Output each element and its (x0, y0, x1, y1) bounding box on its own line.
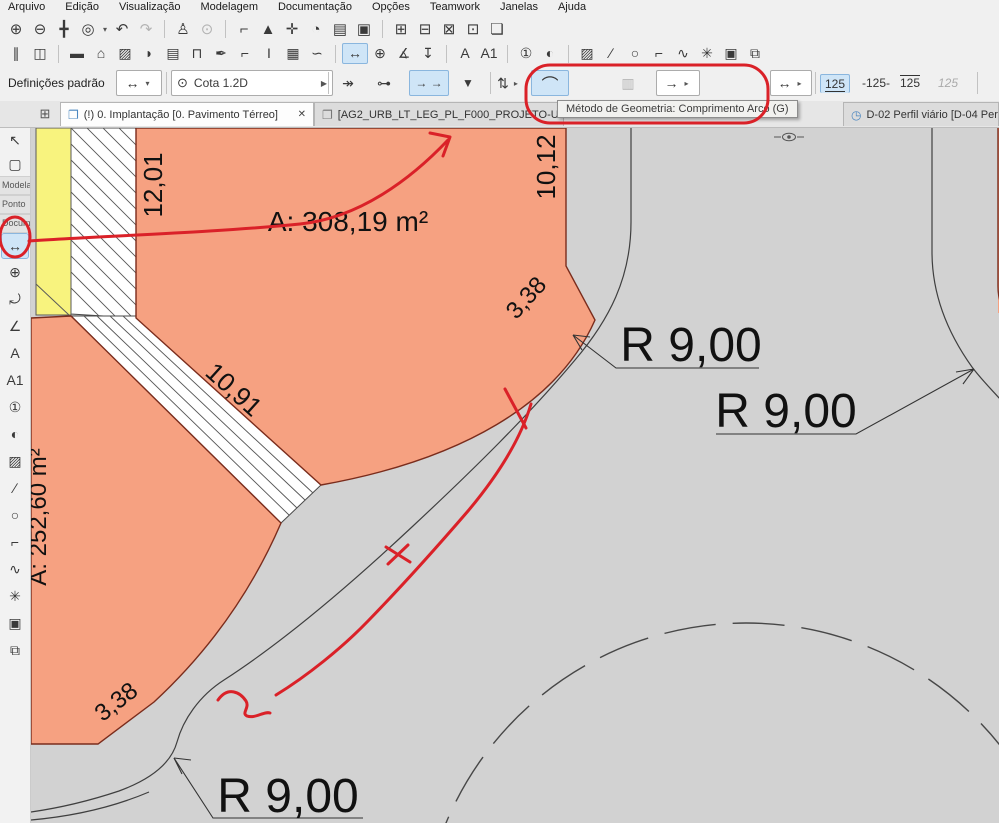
orbit-icon[interactable]: ⊙ (195, 19, 219, 40)
separator (977, 72, 978, 94)
toolbox: ↖▢ModelaPontoDocum↔⊕⤾∠AA1①◐▨∕○⌐∿✳▣⧉ (0, 128, 31, 823)
roof-tool-icon[interactable]: ⌂ (89, 43, 113, 64)
chevron-right-icon: ▸ (682, 79, 692, 88)
tool-fill-pen[interactable]: ◐ (0, 421, 30, 448)
tool-label[interactable]: A1 (0, 367, 30, 394)
dimension-type-value: Cota 1.2D (194, 76, 248, 90)
info-box: Definições padrão ↔ ▾ ⊙ Cota 1.2D ▶ ↠ ⊶ … (0, 65, 999, 101)
witness-line-icon: ↔ (778, 75, 792, 91)
tool-select[interactable]: ↖ (0, 128, 30, 152)
chevron-down-icon: ▾ (143, 79, 153, 88)
separator (166, 72, 167, 94)
elevation-marker-icon[interactable]: ▲ (256, 19, 280, 40)
toolbox-section-modelacao: Modela (0, 176, 30, 195)
tab-label: [AG2_URB_LT_LEG_PL_F000_PROJETO-URBANÍST… (338, 109, 564, 121)
menu-arquivo[interactable]: Arquivo (8, 1, 45, 16)
tool-marquee[interactable]: ▢ (0, 152, 30, 176)
menu-opcoes[interactable]: Opções (372, 1, 410, 16)
chevron-right-icon: ▸ (511, 79, 521, 88)
label-tool-icon[interactable]: A1 (477, 43, 501, 64)
menu-visualizacao[interactable]: Visualização (119, 1, 181, 16)
tab-bar: ⊞ ❐ (!) 0. Implantação [0. Pavimento Tér… (0, 101, 999, 128)
separator (815, 72, 816, 94)
wall-tool-icon[interactable]: ∥ (4, 43, 28, 64)
separator (335, 45, 336, 63)
marker-offset-button[interactable]: ⇅ ▸ (494, 71, 524, 95)
tool-line[interactable]: ∕ (0, 475, 30, 502)
dim-text-style-4-button[interactable]: 125 (934, 74, 962, 92)
menu-teamwork[interactable]: Teamwork (430, 1, 480, 16)
separator (382, 20, 383, 38)
add-drawing-icon[interactable]: ⊡ (461, 19, 485, 40)
tab-implantacao[interactable]: ❐ (!) 0. Implantação [0. Pavimento Térre… (60, 102, 314, 126)
zoom-in-icon[interactable]: ⊕ (4, 19, 28, 40)
menu-ajuda[interactable]: Ajuda (558, 1, 586, 16)
mesh-tool-icon[interactable]: ▨ (113, 43, 137, 64)
door-tool-icon[interactable]: ◫ (28, 43, 52, 64)
tool-circle[interactable]: ○ (0, 502, 30, 529)
zoom-options-caret[interactable]: ▾ (100, 25, 110, 34)
dim-text-style-3-button[interactable]: 125 (896, 74, 924, 92)
zoom-out-icon[interactable]: ⊖ (28, 19, 52, 40)
tab-overview-button[interactable]: ⊞ (34, 104, 56, 124)
tool-dimension[interactable]: ↔ (1, 233, 29, 259)
morph-tool-icon[interactable]: ∽ (305, 43, 329, 64)
tab-projeto-urbanistico[interactable]: ❐ [AG2_URB_LT_LEG_PL_F000_PROJETO-URBANÍ… (314, 102, 564, 126)
mini-toolbar: ∥◫▬⌂▨◗▤⊓✒⌐I▦∽↔⊕∡↧AA1①◐▨∕○⌐∿✳▣⧉ (0, 42, 999, 65)
tool-figure[interactable]: ▣ (0, 610, 30, 637)
polyline-tool-icon[interactable]: ⌐ (647, 43, 671, 64)
dimension-style-icon: ↔ (126, 75, 140, 91)
area-label: A: 308,19 m² (268, 206, 428, 237)
curtain-wall-icon[interactable]: ▤ (161, 43, 185, 64)
angle-dimension-icon[interactable]: ∡ (392, 43, 416, 64)
menubar: Arquivo Edição Visualização Modelagem Do… (0, 0, 999, 16)
drawing-tool-icon[interactable]: ⧉ (743, 43, 767, 64)
move-icon[interactable]: ✛ (280, 19, 304, 40)
tool-drawing[interactable]: ⧉ (0, 637, 30, 664)
tool-polyline[interactable]: ⌐ (0, 529, 30, 556)
radius-label: R 9,00 (217, 770, 358, 823)
brush-icon[interactable]: ✒ (209, 43, 233, 64)
separator (225, 20, 226, 38)
zoom-fit-icon[interactable]: ◎ (76, 19, 100, 40)
separator (164, 20, 165, 38)
elevation-icon: ◷ (851, 108, 861, 122)
circle-tool-icon[interactable]: ○ (623, 43, 647, 64)
zone-stamp-icon[interactable]: ① (514, 43, 538, 64)
toolbox-section-documentacao: Docum (0, 214, 30, 233)
default-settings-label[interactable]: Definições padrão (8, 69, 105, 97)
fill-tool-icon[interactable]: ▨ (575, 43, 599, 64)
circular-dimension-icon[interactable]: ⊕ (368, 43, 392, 64)
walk-icon[interactable]: ♙ (171, 19, 195, 40)
dimension-tool-icon[interactable]: ↔ (342, 43, 368, 64)
standard-toolbar: ⊕⊖╋◎▾↶↷♙⊙⌐▲✛◔▤▣⊞⊟⊠⊡❏ (0, 16, 999, 42)
close-icon[interactable]: ✕ (292, 109, 306, 120)
tool-zone-stamp[interactable]: ① (0, 394, 30, 421)
separator (490, 72, 491, 94)
radius-label: R 9,00 (715, 385, 856, 438)
menu-janelas[interactable]: Janelas (500, 1, 538, 16)
tool-radial-dimension[interactable]: ⤾ (0, 286, 30, 313)
undo-icon[interactable]: ↶ (110, 19, 134, 40)
arrowhead-button[interactable]: → ▸ (656, 70, 700, 96)
tool-fill[interactable]: ▨ (0, 448, 30, 475)
tool-hotspot[interactable]: ✳ (0, 583, 30, 610)
menu-modelagem[interactable]: Modelagem (201, 1, 258, 16)
tab-perfil-viario[interactable]: ◷ D-02 Perfil viário [D-04 Peril viário (843, 102, 999, 126)
line-tool-icon[interactable]: ∕ (599, 43, 623, 64)
dim-arrow-button[interactable]: → → (409, 70, 449, 96)
column-tool-icon[interactable]: ⊓ (185, 43, 209, 64)
grid-tool-icon[interactable]: ▦ (281, 43, 305, 64)
elevation-marker-button[interactable]: ▼ (453, 71, 483, 95)
insert-dimension-button[interactable]: ▥ (610, 71, 646, 95)
geometry-method-tooltip: Método de Geometria: Comprimento Arco (G… (557, 100, 798, 118)
dim-text-style-1-button[interactable]: 125 (820, 74, 850, 93)
figure-tool-icon[interactable]: ▣ (719, 43, 743, 64)
geometry-method-arc-button[interactable]: ⌒ (531, 70, 569, 96)
tool-angle-dimension[interactable]: ∠ (0, 313, 30, 340)
elevation-dimension-icon[interactable]: ↧ (416, 43, 440, 64)
trace-reference-icon[interactable]: ◔ (304, 19, 328, 40)
tool-text[interactable]: A (0, 340, 30, 367)
chevron-right-icon: ▸ (795, 79, 805, 88)
spline-tool-icon[interactable]: ∿ (671, 43, 695, 64)
fill-pen-icon[interactable]: ◐ (538, 43, 562, 64)
witness-line-button[interactable]: ↔ ▸ (770, 70, 812, 96)
profile-icon[interactable]: ⌐ (233, 43, 257, 64)
redo-icon[interactable]: ↷ (134, 19, 158, 40)
tab-label: (!) 0. Implantação [0. Pavimento Térreo] (84, 109, 278, 121)
eye-icon: ⊙ (177, 75, 188, 91)
arrow-right-icon: → (665, 75, 679, 91)
marker-icon[interactable]: ⌐ (232, 19, 256, 40)
publish-icon[interactable]: ❏ (485, 19, 509, 40)
separator (568, 45, 569, 63)
dimension-type-combo[interactable]: ⊙ Cota 1.2D ▶ (171, 70, 333, 96)
menu-documentacao[interactable]: Documentação (278, 1, 352, 16)
separator (328, 72, 329, 94)
save-view-icon[interactable]: ⊟ (413, 19, 437, 40)
stretch-icon: ⇅ (497, 75, 509, 92)
add-layout-icon[interactable]: ⊠ (437, 19, 461, 40)
dim-chain-button[interactable]: ↠ (333, 71, 363, 95)
slab-tool-icon[interactable]: ▬ (65, 43, 89, 64)
camera-icon[interactable]: ▣ (352, 19, 376, 40)
hotspot-tool-icon[interactable]: ✳ (695, 43, 719, 64)
dim-text-style-2-button[interactable]: -125- (858, 74, 894, 92)
image-icon[interactable]: ▤ (328, 19, 352, 40)
site-plan-drawing: 12,01 A: 308,19 m² 10,12 3,38 10,91 A: 2… (31, 128, 999, 823)
drawing-canvas[interactable]: 12,01 A: 308,19 m² 10,12 3,38 10,91 A: 2… (31, 128, 999, 823)
dim-baseline-button[interactable]: ⊶ (369, 71, 399, 95)
dim-label: 12,01 (138, 152, 168, 217)
separator (507, 45, 508, 63)
separator (58, 45, 59, 63)
tool-level-dimension[interactable]: ⊕ (0, 259, 30, 286)
menu-edicao[interactable]: Edição (65, 1, 99, 16)
new-view-icon[interactable]: ⊞ (389, 19, 413, 40)
radius-label: R 9,00 (620, 319, 761, 372)
tab-label: D-02 Perfil viário [D-04 Peril viário (866, 109, 999, 121)
dimension-style-button[interactable]: ↔ ▾ (116, 70, 162, 96)
folder-icon: ❐ (68, 108, 79, 122)
expand-arrow-icon: ▶ (321, 79, 327, 88)
tool-spline[interactable]: ∿ (0, 556, 30, 583)
window-icon: ❐ (322, 108, 333, 122)
beam-tool-icon[interactable]: I (257, 43, 281, 64)
text-tool-icon[interactable]: A (453, 43, 477, 64)
separator (446, 45, 447, 63)
yellow-parcel (36, 128, 71, 315)
shell-tool-icon[interactable]: ◗ (137, 43, 161, 64)
dim-label: 10,12 (531, 134, 561, 199)
toolbox-section-ponto: Ponto (0, 195, 30, 214)
area-label: A: 252,60 m² (31, 448, 52, 585)
pan-icon[interactable]: ╋ (52, 19, 76, 40)
